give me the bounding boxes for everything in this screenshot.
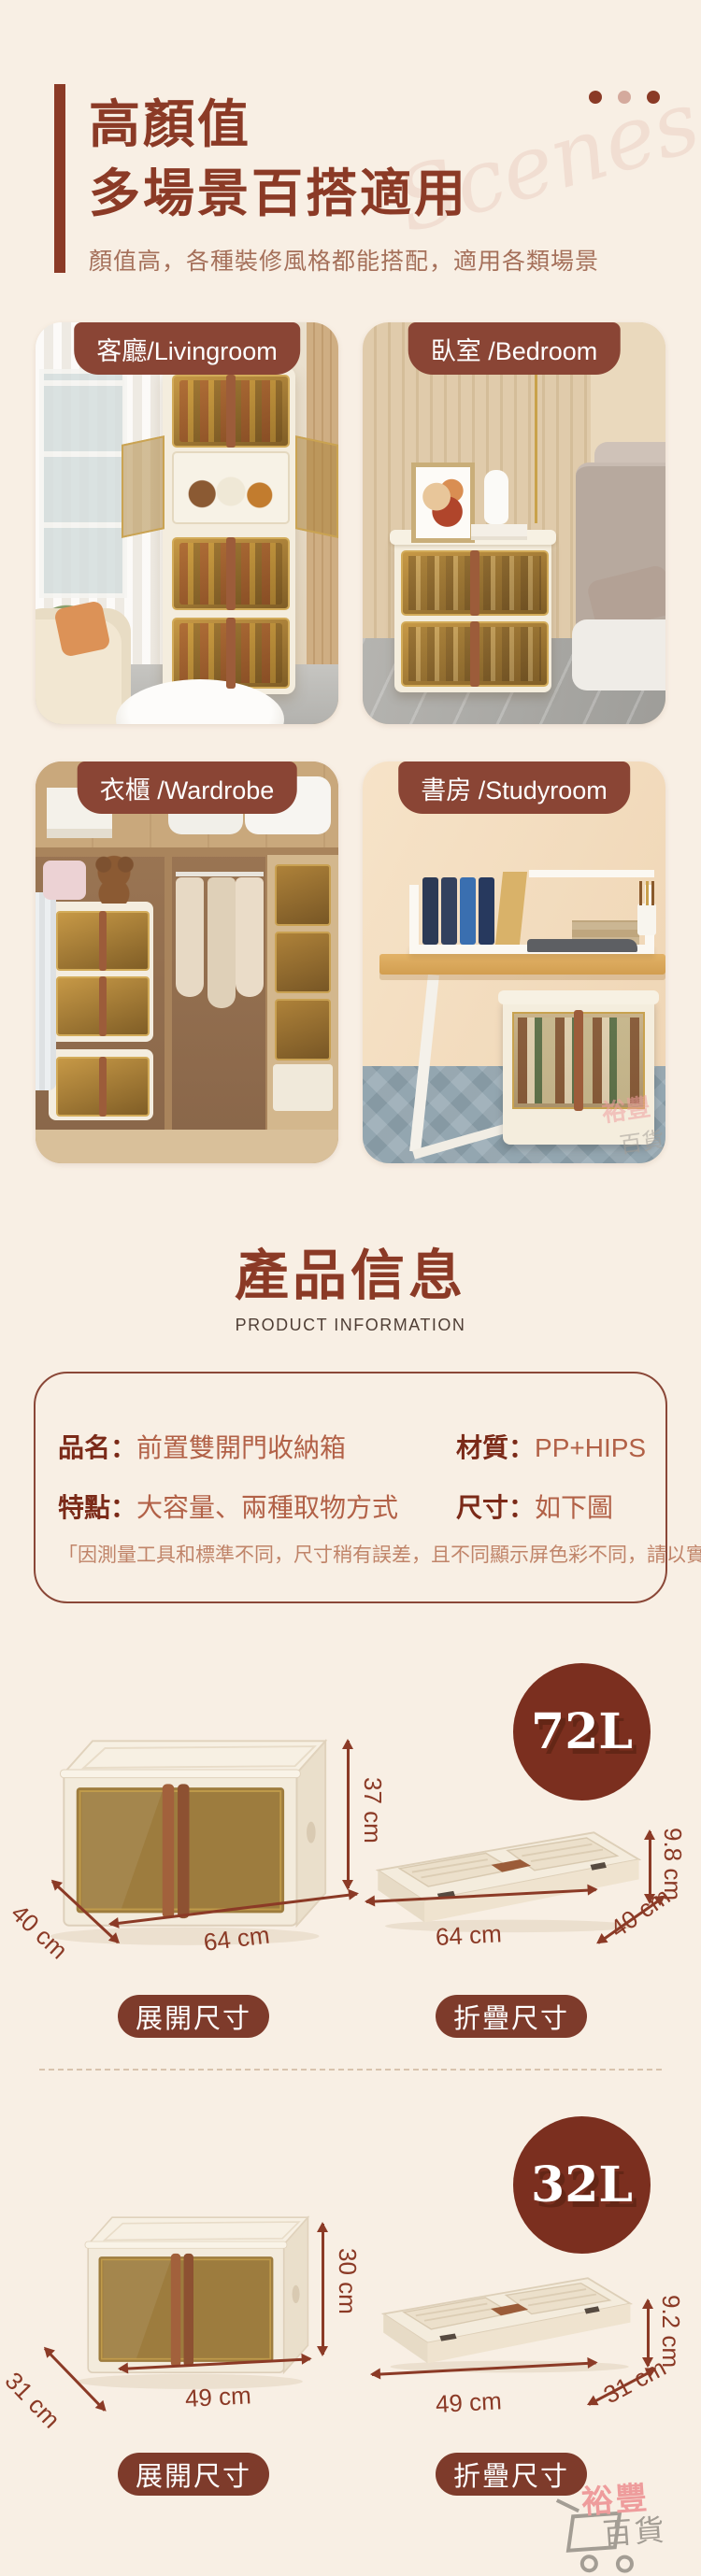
volume-badge-32l: 32L	[513, 2116, 651, 2254]
bed-duvet	[572, 619, 665, 690]
storage-tier	[56, 1057, 150, 1117]
caption-folded-72: 折疊尺寸	[436, 1995, 587, 2038]
storage-tier	[56, 911, 150, 971]
dim-height-32-expanded: 30 cm	[333, 2248, 362, 2314]
small-box	[273, 1064, 333, 1111]
scene-label-studyroom: 書房 /Studyroom	[398, 761, 630, 814]
page-title-line2: 多場景百搭適用	[89, 151, 468, 226]
field-size: 尺寸：如下圖	[456, 1487, 613, 1525]
dot-icon	[589, 91, 602, 104]
hanging-cloth	[236, 877, 264, 997]
desk-hutch	[409, 847, 654, 954]
pencils	[639, 881, 654, 905]
height-arrow-32-folded	[647, 2300, 650, 2366]
page-title-line1: 高顏值	[89, 82, 251, 157]
box-lid-rim	[498, 990, 659, 1004]
product-detail-page: Scenes 高顏值 多場景百搭適用 顏值高，各種裝修風格都能搭配，適用各類場景…	[0, 0, 701, 2576]
binder	[460, 877, 476, 945]
scene-label-livingroom: 客廳/Livingroom	[74, 322, 300, 375]
dot-icon	[618, 91, 631, 104]
storage-tier	[172, 537, 290, 610]
storage-box-unit	[394, 535, 551, 692]
field-label: 特點：	[58, 1493, 136, 1522]
height-arrow-72-expanded	[347, 1741, 350, 1888]
scene-card-studyroom: 裕豐 百貨 書房 /Studyroom	[363, 761, 665, 1163]
drawer	[275, 932, 331, 993]
field-value: PP+HIPS	[535, 1433, 646, 1462]
dim-width-32-folded: 49 cm	[435, 2386, 502, 2419]
folder	[495, 872, 527, 945]
scene-label-bedroom: 臥室 /Bedroom	[408, 322, 621, 375]
open-door-right	[295, 435, 338, 538]
field-feature: 特點：大容量、兩種取物方式	[58, 1487, 398, 1525]
binder	[479, 877, 494, 945]
binder	[422, 877, 438, 945]
shopping-cart-icon	[556, 2498, 579, 2512]
field-product-name: 品名：前置雙開門收納箱	[58, 1428, 346, 1465]
drawer-unit	[267, 855, 338, 1130]
dot-icon	[647, 91, 660, 104]
volume-badge-72l: 72L	[513, 1663, 651, 1800]
watermark-text: 裕豐	[600, 1092, 652, 1127]
handbag	[43, 861, 86, 900]
field-label: 材質：	[456, 1433, 535, 1462]
field-value: 大容量、兩種取物方式	[136, 1493, 398, 1522]
storage-tier	[56, 976, 150, 1036]
floor	[36, 1130, 338, 1163]
open-door-left	[122, 435, 165, 538]
picture-frame	[411, 463, 475, 543]
title-accent-bar	[54, 84, 65, 273]
laptop	[527, 939, 637, 952]
shelf-side	[409, 885, 419, 954]
drawer	[275, 864, 331, 926]
book-stack	[471, 524, 527, 536]
brand-name-line2: 百貨	[601, 2506, 667, 2554]
storage-tier	[172, 618, 290, 689]
shopping-cart-icon	[579, 2555, 598, 2573]
divider	[165, 847, 172, 1130]
brand-logo: 裕豐 百貨	[553, 2470, 681, 2576]
storage-tier-teddy	[172, 451, 290, 524]
couch-pillow	[53, 600, 111, 658]
storage-cabinet	[163, 367, 295, 694]
hanging-rod	[176, 872, 264, 876]
vase	[484, 470, 508, 524]
section-title: 產品信息	[0, 1231, 701, 1310]
field-value: 前置雙開門收納箱	[136, 1433, 346, 1462]
brand-watermark-small: 裕豐 百貨	[599, 1087, 665, 1161]
dim-height-32-folded: 9.2 cm	[656, 2295, 685, 2368]
section-divider	[39, 2069, 662, 2071]
stacked-storage-box	[49, 902, 153, 1042]
drawer	[275, 999, 331, 1060]
caption-expanded-32: 展開尺寸	[118, 2453, 269, 2496]
scene-card-bedroom: 臥室 /Bedroom	[363, 322, 665, 724]
window	[39, 369, 127, 598]
shopping-cart-icon	[615, 2555, 634, 2573]
caption-expanded-72: 展開尺寸	[118, 1995, 269, 2038]
binder	[441, 877, 457, 945]
section-subtitle-en: PRODUCT INFORMATION	[0, 1316, 701, 1335]
storage-tier	[401, 621, 549, 687]
dim-depth-32-expanded: 31 cm	[0, 2367, 65, 2434]
scene-card-wardrobe: 衣櫃 /Wardrobe	[36, 761, 338, 1163]
hanging-cloth	[176, 877, 204, 997]
page-subtitle: 顏值高，各種裝修風格都能搭配，適用各類場景	[89, 243, 599, 277]
hanging-cloth	[207, 877, 236, 1008]
storage-tier	[172, 375, 290, 448]
pen-cup	[637, 904, 656, 935]
dim-width-72-folded: 64 cm	[435, 1919, 502, 1952]
field-value: 如下圖	[535, 1493, 613, 1522]
upper-shelf	[529, 870, 654, 877]
height-arrow-32-expanded	[322, 2224, 324, 2355]
single-storage-box	[49, 1049, 153, 1120]
folded-box-illustration-32l	[372, 2261, 638, 2376]
scene-label-wardrobe: 衣櫃 /Wardrobe	[78, 761, 297, 814]
field-label: 尺寸：	[456, 1493, 535, 1522]
storage-tier	[401, 550, 549, 616]
field-material: 材質：PP+HIPS	[456, 1428, 646, 1465]
decor-dots	[589, 91, 660, 104]
field-label: 品名：	[58, 1433, 136, 1462]
teddy-bear	[88, 849, 140, 904]
watermark-text: 百貨	[618, 1128, 665, 1159]
scene-card-livingroom: 客廳/Livingroom	[36, 322, 338, 724]
suitcase	[36, 892, 56, 1090]
desk-top	[379, 954, 665, 975]
folded-box-illustration-72l	[366, 1815, 647, 1936]
disclaimer-text: 「因測量工具和標準不同，尺寸稍有誤差，且不同顯示屏色彩不同，請以實物為準哦	[58, 1540, 701, 1568]
dim-width-32-expanded: 49 cm	[184, 2381, 251, 2413]
